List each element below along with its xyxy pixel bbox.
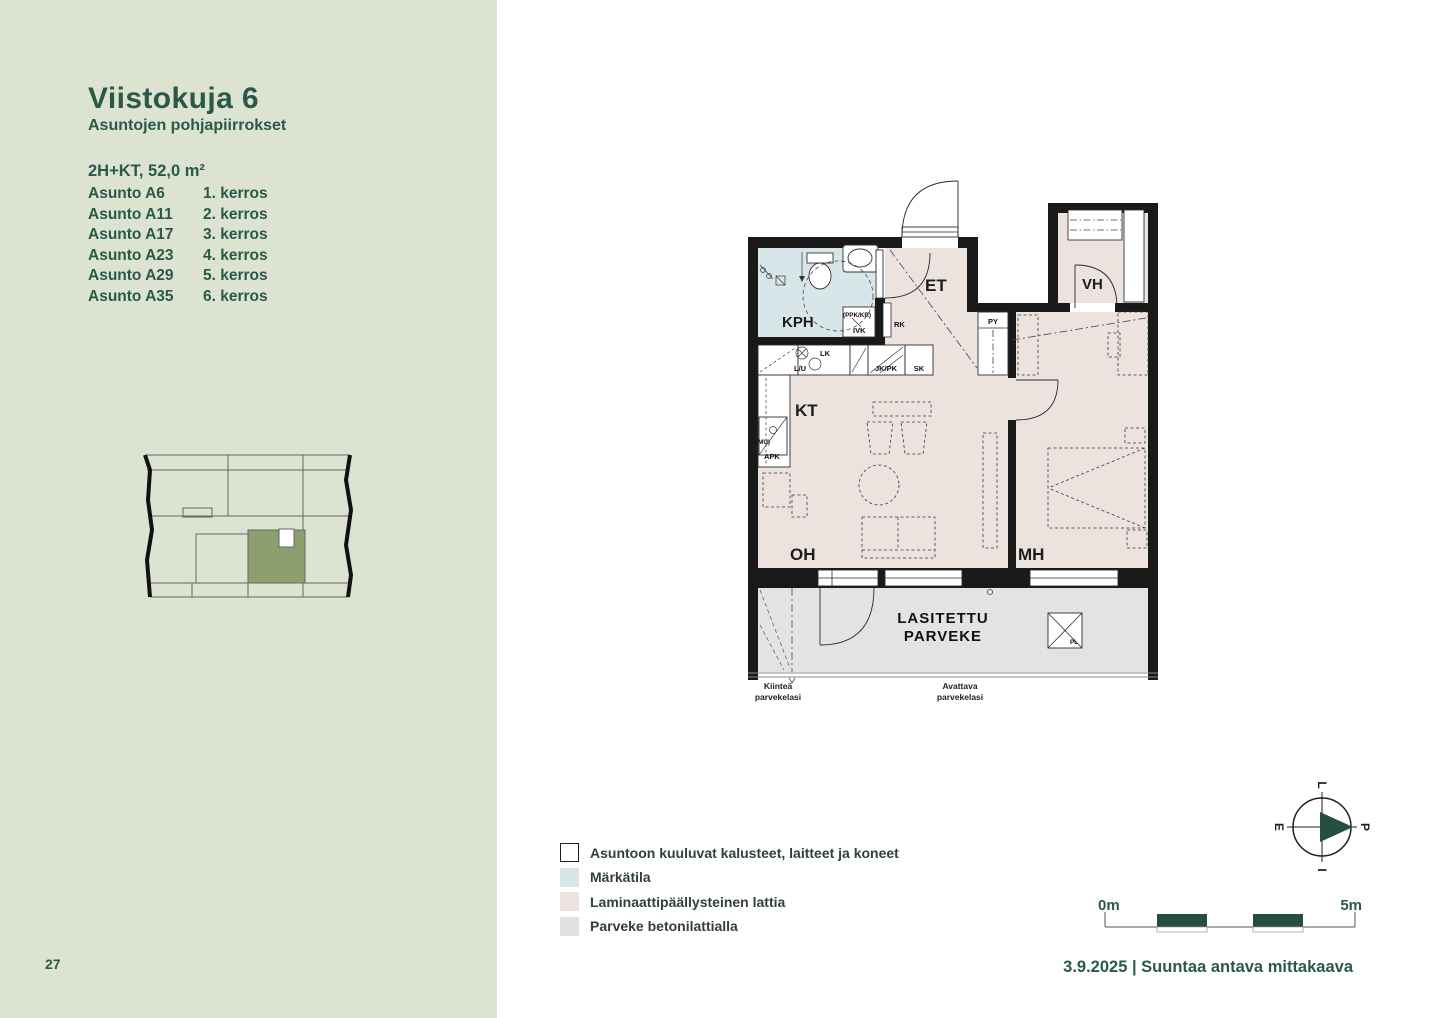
- scale-segment: [1253, 914, 1303, 927]
- fixture-label-pl: PL: [1070, 639, 1078, 646]
- apartment-name: Asunto A35: [88, 287, 203, 308]
- fixture-label-mu: (MU): [756, 439, 770, 446]
- fixture-label-apk: APK: [764, 452, 780, 461]
- glass-label-open-line2: parvekelasi: [937, 692, 983, 702]
- floor-plan: PY RK LK L/U JK/PK SK (MU) APK: [740, 170, 1170, 710]
- apartment-row: Asunto A17 3. kerros: [88, 225, 268, 246]
- room-label-mh: MH: [1018, 545, 1044, 564]
- compass-letter-left: E: [1272, 823, 1286, 831]
- room-label-et: ET: [925, 276, 947, 295]
- legend: Asuntoon kuuluvat kalusteet, laitteet ja…: [560, 843, 899, 941]
- fixture-label-lu: L/U: [794, 364, 806, 373]
- fixture-label-py: PY: [988, 317, 998, 326]
- room-label-kt: KT: [795, 401, 818, 420]
- apartment-name: Asunto A11: [88, 205, 203, 226]
- apartment-list: Asunto A6 1. kerros Asunto A11 2. kerros…: [88, 184, 268, 308]
- apartment-floor: 4. kerros: [203, 246, 268, 267]
- balcony-label-line2: PARVEKE: [904, 628, 982, 645]
- fixture-label-jkpk: JK/PK: [875, 364, 898, 373]
- apartment-row: Asunto A23 4. kerros: [88, 246, 268, 267]
- apartment-row: Asunto A11 2. kerros: [88, 205, 268, 226]
- brochure-page: { "page": { "number": "27" }, "sidebar":…: [0, 0, 1440, 1018]
- compass-letter-top: L: [1315, 781, 1329, 788]
- compass-letter-bottom: I: [1315, 868, 1329, 871]
- apartment-row: Asunto A29 5. kerros: [88, 266, 268, 287]
- room-label-oh: OH: [790, 545, 816, 564]
- scale-start-label: 0m: [1098, 897, 1120, 914]
- apartment-row: Asunto A6 1. kerros: [88, 184, 268, 205]
- legend-item: Laminaattipäällysteinen lattia: [560, 892, 899, 911]
- legend-swatch-furniture: [560, 843, 579, 862]
- unit-type-heading: 2H+KT, 52,0 m²: [88, 162, 205, 181]
- compass-north-pointer: [1320, 812, 1353, 842]
- apartment-floor: 2. kerros: [203, 205, 268, 226]
- legend-swatch-balcony: [560, 917, 579, 936]
- balcony-label-line1: LASITETTU: [897, 610, 989, 627]
- apartment-name: Asunto A23: [88, 246, 203, 267]
- legend-item: Asuntoon kuuluvat kalusteet, laitteet ja…: [560, 843, 899, 862]
- apartment-floor: 5. kerros: [203, 266, 268, 287]
- apartment-name: Asunto A17: [88, 225, 203, 246]
- legend-label: Märkätila: [590, 869, 651, 885]
- fixture-label-ppkkr: (PPK/KR): [843, 312, 871, 319]
- legend-label: Laminaattipäällysteinen lattia: [590, 894, 785, 910]
- legend-swatch-laminate: [560, 892, 579, 911]
- key-plan-highlight: [248, 530, 305, 583]
- scale-segment: [1157, 914, 1207, 927]
- legend-label: Asuntoon kuuluvat kalusteet, laitteet ja…: [590, 845, 899, 861]
- fixture-label-sk: SK: [914, 364, 925, 373]
- fixture-label-lk: LK: [820, 349, 831, 358]
- apartment-floor: 3. kerros: [203, 225, 268, 246]
- legend-swatch-wet-room: [560, 868, 579, 887]
- room-label-kph: KPH: [782, 314, 814, 331]
- fixture-label-ivk: IVK: [853, 326, 866, 335]
- page-title: Viistokuja 6: [88, 82, 259, 116]
- page-number: 27: [45, 956, 61, 972]
- sidebar: Viistokuja 6 Asuntojen pohjapiirrokset 2…: [0, 0, 497, 1018]
- legend-label: Parveke betonilattialla: [590, 918, 738, 934]
- legend-item: Märkätila: [560, 868, 899, 887]
- apartment-row: Asunto A35 6. kerros: [88, 287, 268, 308]
- key-plan: [140, 452, 356, 598]
- apartment-floor: 6. kerros: [203, 287, 268, 308]
- legend-item: Parveke betonilattialla: [560, 917, 899, 936]
- py-closet: PY: [978, 312, 1008, 375]
- room-label-vh: VH: [1082, 276, 1103, 293]
- apartment-name: Asunto A29: [88, 266, 203, 287]
- page-subtitle: Asuntojen pohjapiirrokset: [88, 117, 286, 135]
- compass-rose: L P I E: [1272, 777, 1372, 877]
- apartment-floor: 1. kerros: [203, 184, 268, 205]
- fixture-label-rk: RK: [894, 320, 905, 329]
- rk-box: [883, 303, 891, 337]
- apartment-name: Asunto A6: [88, 184, 203, 205]
- compass-letter-right: P: [1358, 823, 1372, 831]
- date-and-scale-note: 3.9.2025 | Suuntaa antava mittakaava: [1063, 958, 1353, 977]
- scale-end-label: 5m: [1340, 897, 1362, 914]
- glass-label-open-line1: Avattava: [942, 681, 977, 691]
- scale-bar: 0m 5m: [1090, 890, 1370, 940]
- glass-label-fixed-line1: Kiinteä: [764, 681, 793, 691]
- glass-label-fixed-line2: parvekelasi: [755, 692, 801, 702]
